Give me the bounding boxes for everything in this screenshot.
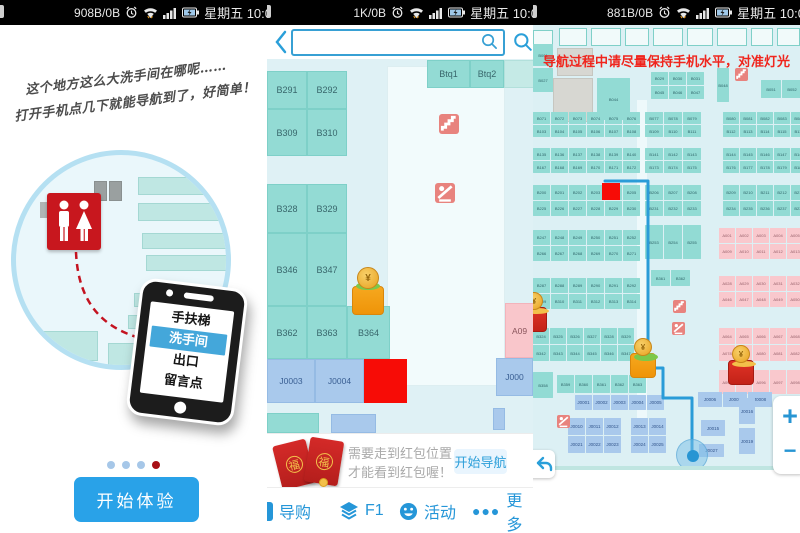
store-cell[interactable]: B115	[774, 125, 790, 137]
store-cell[interactable]: B046	[669, 86, 686, 99]
escalator-icon	[557, 415, 570, 428]
phone-illustration: 手扶梯 洗手间 出口 留言点	[125, 277, 249, 427]
pager-dot[interactable]	[152, 461, 160, 469]
store-cell[interactable]: B266	[533, 246, 550, 261]
store-cell[interactable]: J0014	[649, 418, 666, 435]
store-cell[interactable]: B362	[671, 270, 690, 286]
store-cell[interactable]: B136	[551, 148, 568, 160]
store-cell[interactable]: B178	[757, 161, 773, 173]
store-cell[interactable]: B077	[645, 112, 663, 124]
gold-coin-icon: ¥	[634, 338, 652, 356]
store-cell[interactable]: B176	[723, 161, 739, 173]
store-cell[interactable]: B116	[791, 125, 800, 137]
store-cell[interactable]: B227	[569, 201, 586, 216]
store-cell[interactable]: B255	[683, 225, 701, 259]
store-cell[interactable]: J0004	[315, 359, 364, 403]
store-cell[interactable]: B208	[683, 185, 701, 200]
navigation-panel: 881B/0B 星期五 10:0 导航过程中请尽量保持手机水平，对准灯光 B00…	[533, 0, 800, 533]
store-cell[interactable]: B045	[651, 86, 668, 99]
store-cell[interactable]: B169	[569, 161, 586, 173]
store-cell[interactable]: B291	[605, 278, 622, 293]
store-cell[interactable]: B235	[740, 201, 756, 216]
back-button[interactable]	[533, 450, 555, 478]
signal-icon	[429, 6, 443, 19]
restroom-figures-icon	[52, 199, 96, 245]
store-cell[interactable]: B313	[605, 294, 622, 309]
store-cell[interactable]: A098	[787, 370, 800, 394]
store-cell[interactable]: B327	[584, 328, 600, 344]
store-cell[interactable]: B346	[267, 233, 307, 306]
store-cell[interactable]: B251	[605, 230, 622, 245]
map-block[interactable]	[364, 359, 407, 403]
store-cell[interactable]: B290	[587, 278, 604, 293]
store-cell[interactable]: A028	[719, 276, 735, 291]
store-cluster: A001A002A003A004A005A009A010A011A012A013	[719, 228, 800, 259]
map-panel: 1K/0B 星期五 10:0 B291B292B309B310B328B329B…	[267, 0, 533, 533]
store-cell[interactable]: B177	[740, 161, 756, 173]
store-cell[interactable]: B234	[723, 201, 739, 216]
store-cell[interactable]: A005	[787, 228, 800, 243]
store-cell[interactable]: B362	[611, 375, 628, 393]
search-input[interactable]	[291, 29, 505, 56]
store-cell[interactable]: B109	[645, 125, 663, 137]
store-cell[interactable]: B172	[623, 161, 640, 173]
store-cell[interactable]: B288	[551, 278, 568, 293]
store-cell[interactable]: B135	[533, 148, 550, 160]
store-cell[interactable]: B106	[587, 125, 604, 137]
store-cell[interactable]: B071	[533, 112, 550, 124]
store-cell[interactable]: B137	[569, 148, 586, 160]
store-cell[interactable]: B073	[569, 112, 586, 124]
store-cluster: J0006J0007J0008	[698, 392, 772, 407]
store-cell[interactable]: B328	[267, 184, 307, 233]
search-icon[interactable]	[513, 32, 533, 52]
store-cluster: B358	[533, 372, 553, 398]
store-cell[interactable]: B226	[551, 201, 568, 216]
store-cell[interactable]: B358	[533, 372, 553, 398]
store-cell[interactable]: A046	[719, 292, 735, 307]
store-cell[interactable]: B292	[623, 278, 640, 293]
store-cell[interactable]: A013	[787, 244, 800, 259]
store-cell[interactable]: B225	[533, 201, 550, 216]
store-cell[interactable]: B029	[651, 72, 668, 85]
store-cell[interactable]: B075	[605, 112, 622, 124]
tab-floor[interactable]: F1	[339, 488, 384, 533]
stairs-icon	[673, 300, 686, 313]
store-cell[interactable]: A002	[736, 228, 752, 243]
wifi-icon	[409, 6, 424, 19]
zoom-in-button[interactable]: +	[773, 396, 800, 436]
store-cell[interactable]: J0005	[647, 395, 664, 410]
smiley-icon	[399, 502, 418, 521]
store-cell[interactable]: A031	[770, 276, 786, 291]
store-cluster: B200B201B202B203B205B225B226B227B228B229…	[533, 185, 640, 216]
store-cell[interactable]: B254	[664, 225, 682, 259]
store-cell[interactable]: Btq1	[427, 60, 470, 88]
store-cell[interactable]: B312	[587, 294, 604, 309]
fu-character: 福	[284, 454, 305, 475]
store-cell[interactable]: B310	[551, 294, 568, 309]
store-cell[interactable]: B238	[791, 201, 800, 216]
status-bar: 908B/0B 星期五 10:0	[0, 0, 267, 25]
store-cell[interactable]: J0004	[629, 395, 646, 410]
store-cell[interactable]: B139	[605, 148, 622, 160]
store-cluster: A028A029A030A031A032A046A047A048A049A050	[719, 276, 800, 307]
store-cell[interactable]: B212	[774, 185, 790, 200]
zoom-control: + −	[773, 396, 800, 474]
store-cluster: B253B254B255	[645, 225, 701, 259]
store-cell[interactable]: J000	[496, 358, 533, 396]
store-cell[interactable]: J0015	[701, 420, 725, 436]
start-navigation-button[interactable]: 开始导航	[454, 449, 507, 474]
store-cell[interactable]: J0016	[739, 398, 755, 424]
store-cell[interactable]: B167	[533, 161, 550, 173]
battery-charging-icon	[448, 7, 465, 18]
store-cell[interactable]: B249	[569, 230, 586, 245]
store-cell[interactable]: B229	[605, 201, 622, 216]
store-cell[interactable]: A080	[753, 345, 769, 361]
store-cell[interactable]: B250	[587, 230, 604, 245]
store-cell[interactable]: B268	[569, 246, 586, 261]
store-cell[interactable]: B142	[664, 148, 682, 160]
store-cell[interactable]: J0003	[611, 395, 628, 410]
red-packet-mascot[interactable]: ¥	[533, 292, 547, 332]
store-cell[interactable]: B346	[601, 345, 617, 361]
store-cell[interactable]: B343	[550, 345, 566, 361]
gold-coin-icon	[319, 478, 328, 487]
store-cluster: J0016	[739, 398, 755, 424]
store-cell[interactable]: A096	[753, 370, 769, 394]
start-experience-button[interactable]: 开始体验	[74, 477, 199, 522]
back-icon[interactable]	[273, 30, 289, 54]
store-cell[interactable]: B080	[723, 112, 739, 124]
store-cell[interactable]: B213	[791, 185, 800, 200]
store-cell[interactable]: B287	[533, 278, 550, 293]
store-cell[interactable]: J0013	[631, 418, 648, 435]
store-cell[interactable]: B168	[551, 161, 568, 173]
store-cell[interactable]: B030	[669, 72, 686, 85]
restroom-sign	[47, 193, 101, 250]
store-cluster: B048	[717, 68, 729, 102]
map-block[interactable]	[267, 413, 319, 433]
store-cell[interactable]: B289	[569, 278, 586, 293]
store-cell[interactable]: B146	[757, 148, 773, 160]
store-cell[interactable]: B110	[664, 125, 682, 137]
store-cell[interactable]: J0025	[649, 436, 666, 453]
store-cell[interactable]: B292	[307, 71, 347, 109]
notification-icon	[0, 5, 4, 18]
store-cell[interactable]: J0021	[568, 436, 585, 453]
store-cell[interactable]: B143	[683, 148, 701, 160]
pager-dot[interactable]	[137, 461, 145, 469]
store-cell[interactable]: A048	[753, 292, 769, 307]
pager-dot[interactable]	[122, 461, 130, 469]
gold-packet-mascot[interactable]: ¥	[630, 338, 656, 378]
store-cell[interactable]: B141	[645, 148, 663, 160]
tab-guide[interactable]: 导购	[267, 488, 311, 533]
store-cluster: B324B325B326B327B328B329B342B343B344B345…	[533, 328, 634, 361]
store-cell[interactable]: B174	[664, 161, 682, 173]
store-cell[interactable]: B206	[645, 185, 663, 200]
store-cell[interactable]: A067	[770, 328, 786, 344]
tab-more[interactable]: ●●● 更多	[472, 488, 533, 533]
store-cell[interactable]: B210	[740, 185, 756, 200]
store-cluster: B361B362	[651, 270, 690, 286]
map-pattern	[34, 331, 98, 361]
store-cell[interactable]: B179	[774, 161, 790, 173]
store-cell[interactable]: A09	[505, 303, 533, 358]
alarm-icon	[125, 6, 138, 19]
store-cell[interactable]: B362	[267, 306, 307, 359]
zoom-out-button[interactable]: −	[773, 436, 800, 466]
store-cell[interactable]: A010	[736, 244, 752, 259]
signal-icon	[696, 6, 710, 19]
mall-map-f1[interactable]: B291B292B309B310B328B329B346B347B362B363…	[267, 59, 533, 433]
store-cell[interactable]: B248	[551, 230, 568, 245]
store-cell[interactable]: B270	[605, 246, 622, 261]
store-cell[interactable]: B236	[757, 201, 773, 216]
store-cell[interactable]: B347	[307, 233, 347, 306]
store-cluster: J0001J0002J0003J0004J0005	[575, 395, 664, 410]
store-cluster: B051B052	[761, 80, 800, 98]
store-cluster: J0015	[701, 420, 725, 436]
map-block[interactable]	[331, 414, 376, 433]
gold-packet-mascot[interactable]: ¥	[352, 267, 384, 315]
store-cell[interactable]: A004	[770, 228, 786, 243]
store-cell[interactable]: J0001	[575, 395, 592, 410]
store-cell[interactable]: A049	[770, 292, 786, 307]
store-cell[interactable]: J0002	[593, 395, 610, 410]
map-pattern	[146, 255, 231, 271]
store-cluster: B287B288B289B290B291B292B309B310B311B312…	[533, 278, 640, 309]
store-cell[interactable]: B311	[569, 294, 586, 309]
store-cell[interactable]: B103	[533, 125, 550, 137]
store-cell[interactable]: B325	[550, 328, 566, 344]
map-block[interactable]	[493, 408, 505, 430]
store-cell[interactable]: B342	[533, 345, 549, 361]
store-cell[interactable]: B359	[557, 375, 574, 393]
pager-dot[interactable]	[107, 461, 115, 469]
notification-icon	[533, 5, 537, 18]
store-cell[interactable]: B267	[551, 246, 568, 261]
store-cell[interactable]: A032	[787, 276, 800, 291]
store-cell[interactable]: Btq2	[470, 60, 504, 88]
store-cell[interactable]: J0023	[604, 436, 621, 453]
store-cluster: B027	[533, 68, 553, 92]
store-cell[interactable]: A081	[770, 345, 786, 361]
escalator-icon	[435, 183, 455, 203]
store-cell[interactable]: A030	[753, 276, 769, 291]
store-cell[interactable]: B363	[307, 306, 347, 359]
store-cell[interactable]: B078	[664, 112, 682, 124]
store-cell[interactable]: B309	[267, 109, 307, 156]
store-cell[interactable]: B082	[757, 112, 773, 124]
store-cell[interactable]: B072	[551, 112, 568, 124]
battery-charging-icon	[715, 7, 732, 18]
stairs-icon	[439, 114, 459, 134]
store-cell[interactable]: A047	[736, 292, 752, 307]
store-cell[interactable]: B175	[683, 161, 701, 173]
store-cell[interactable]: B228	[587, 201, 604, 216]
store-cell[interactable]: B361	[593, 375, 610, 393]
store-cell[interactable]: B269	[587, 246, 604, 261]
store-cell[interactable]: B140	[623, 148, 640, 160]
store-cell[interactable]: B200	[533, 185, 550, 200]
store-cell[interactable]: A082	[787, 345, 800, 361]
store-cell[interactable]: B310	[307, 109, 347, 156]
wall-block	[625, 28, 649, 46]
search-icon[interactable]	[481, 33, 498, 50]
battery-charging-icon	[182, 7, 199, 18]
banner-line-1: 需要走到红包位置，	[348, 444, 465, 463]
store-cell[interactable]: B114	[757, 125, 773, 137]
store-cell[interactable]: B108	[623, 125, 640, 137]
guide-icon	[267, 502, 273, 521]
tab-activity[interactable]: 活动	[399, 488, 456, 533]
store-cell[interactable]: A012	[770, 244, 786, 259]
store-cell[interactable]: B104	[551, 125, 568, 137]
store-cell[interactable]: B145	[740, 148, 756, 160]
store-cell[interactable]: J0012	[604, 418, 621, 435]
bottom-whitespace	[533, 470, 800, 533]
store-cell[interactable]: B344	[567, 345, 583, 361]
store-cell[interactable]: B271	[623, 246, 640, 261]
store-cell[interactable]: B048	[717, 68, 729, 102]
store-cell[interactable]: J0022	[586, 436, 603, 453]
store-cell[interactable]: B084	[791, 112, 800, 124]
store-cell[interactable]: B345	[584, 345, 600, 361]
store-cell[interactable]: B107	[605, 125, 622, 137]
store-cell[interactable]: A068	[787, 328, 800, 344]
map-pattern	[138, 177, 214, 195]
store-cell[interactable]: B209	[723, 185, 739, 200]
store-cell[interactable]: A009	[719, 244, 735, 259]
store-cell[interactable]: B113	[740, 125, 756, 137]
store-cell[interactable]: B111	[683, 125, 701, 137]
store-cell[interactable]: A003	[753, 228, 769, 243]
triptych-screenshot: 908B/0B 星期五 10:0 这个地方这么大洗手间在哪呢…… 打开手机点几下…	[0, 0, 800, 533]
intro-caption: 这个地方这么大洗手间在哪呢…… 打开手机点几下就能导航到了，好简单！	[10, 49, 266, 129]
wall-block	[591, 28, 621, 46]
destination-store-highlight[interactable]	[602, 183, 620, 200]
store-cell[interactable]: B237	[774, 201, 790, 216]
store-cell[interactable]: B112	[723, 125, 739, 137]
wall-block	[653, 28, 683, 46]
store-cell[interactable]: A001	[719, 228, 735, 243]
store-cell[interactable]: B144	[723, 148, 739, 160]
nav-map[interactable]: 导航过程中请尽量保持手机水平，对准灯光 B001B027B044B029B030…	[533, 25, 800, 470]
store-cell[interactable]: A064	[719, 328, 735, 344]
map-pattern	[109, 181, 122, 201]
store-cell[interactable]: B081	[740, 112, 756, 124]
store-cell[interactable]: B171	[605, 161, 622, 173]
store-cell[interactable]: B202	[569, 185, 586, 200]
store-cell[interactable]: B170	[587, 161, 604, 173]
store-cell[interactable]: B326	[567, 328, 583, 344]
store-cell[interactable]: B047	[687, 86, 704, 99]
store-cell[interactable]: B231	[645, 201, 663, 216]
store-cell[interactable]: A050	[787, 292, 800, 307]
pager-dots	[0, 461, 267, 469]
store-cell[interactable]: B201	[551, 185, 568, 200]
store-cell[interactable]: A097	[770, 370, 786, 394]
store-cell[interactable]: J0006	[698, 392, 722, 407]
store-cluster: B135B136B137B138B139B140B167B168B169B170…	[533, 148, 640, 173]
store-cell[interactable]: B147	[774, 148, 790, 160]
store-cell[interactable]: A065	[736, 328, 752, 344]
store-cell[interactable]: J0011	[586, 418, 603, 435]
store-cell[interactable]: B031	[687, 72, 704, 85]
store-cell[interactable]: B205	[623, 185, 640, 200]
store-cluster: B206B207B208B231B232B233	[645, 185, 701, 216]
clock-text: 星期五 10:0	[204, 3, 267, 22]
store-cell[interactable]: B076	[623, 112, 640, 124]
store-cell[interactable]: B083	[774, 112, 790, 124]
store-cell[interactable]: B232	[664, 201, 682, 216]
store-cell[interactable]: B079	[683, 112, 701, 124]
store-cell[interactable]: J0010	[568, 418, 585, 435]
bottom-tab-bar: 导购 F1 活动 ●●● 更多	[267, 487, 533, 533]
store-cell[interactable]: A011	[753, 244, 769, 259]
store-cell[interactable]: B148	[791, 148, 800, 160]
store-cell[interactable]: A066	[753, 328, 769, 344]
store-cluster: B077B078B079B109B110B111	[645, 112, 701, 137]
signal-icon	[163, 6, 177, 19]
wall-block	[751, 28, 773, 46]
map-block[interactable]	[504, 60, 533, 88]
data-usage: 1K/0B	[353, 6, 386, 20]
store-cell[interactable]: B247	[533, 230, 550, 245]
store-cell[interactable]: B361	[651, 270, 670, 286]
more-icon: ●●●	[472, 503, 500, 519]
map-pattern	[142, 233, 231, 249]
notification-icon	[267, 5, 271, 18]
store-cell[interactable]: B314	[623, 294, 640, 309]
alarm-icon	[658, 6, 671, 19]
store-cell[interactable]: J0024	[631, 436, 648, 453]
store-cell[interactable]: B173	[645, 161, 663, 173]
store-cell[interactable]: B329	[307, 184, 347, 233]
store-cell[interactable]: B360	[575, 375, 592, 393]
store-cell[interactable]: B233	[683, 201, 701, 216]
store-cell[interactable]: B291	[267, 71, 307, 109]
store-cell[interactable]: B253	[645, 225, 663, 259]
tab-label: 导购	[279, 499, 311, 523]
redpacket-banner: 福 福 需要走到红包位置， 才能看到红包喔！ 开始导航	[267, 433, 533, 487]
store-cell[interactable]: B211	[757, 185, 773, 200]
store-cell[interactable]: B328	[601, 328, 617, 344]
store-cell[interactable]: B207	[664, 185, 682, 200]
store-cell[interactable]: B051	[761, 80, 781, 98]
layers-icon	[339, 501, 359, 521]
store-cell[interactable]: A029	[736, 276, 752, 291]
store-cell[interactable]: B180	[791, 161, 800, 173]
store-cell[interactable]: B252	[623, 230, 640, 245]
tab-label: 活动	[424, 499, 456, 523]
store-cell[interactable]: B105	[569, 125, 586, 137]
navigation-warning-text: 导航过程中请尽量保持手机水平，对准灯光	[533, 51, 800, 70]
store-cluster: B144B145B146B147B148B176B177B178B179B180	[723, 148, 800, 173]
store-cell[interactable]: B027	[533, 68, 553, 92]
store-cell[interactable]: B138	[587, 148, 604, 160]
store-cell[interactable]: B230	[623, 201, 640, 216]
store-cell[interactable]: B052	[782, 80, 800, 98]
red-packet-mascot[interactable]: ¥	[728, 345, 754, 385]
clock-text: 星期五 10:0	[737, 3, 800, 22]
store-cell[interactable]: B074	[587, 112, 604, 124]
store-cell[interactable]: J0003	[267, 359, 315, 403]
store-cell[interactable]: J0019	[739, 428, 755, 454]
